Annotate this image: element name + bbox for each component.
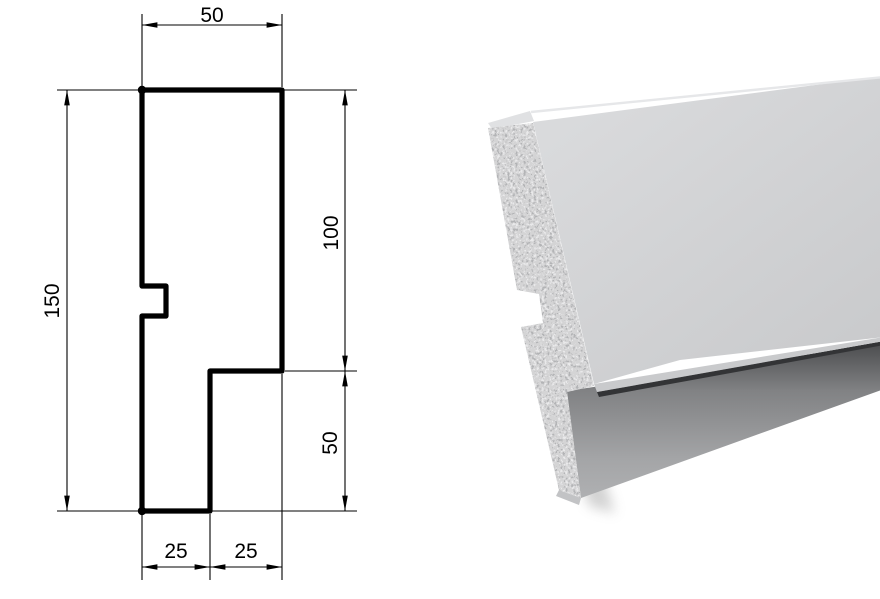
profile-outline	[142, 90, 282, 511]
profile-3d-render	[488, 76, 880, 513]
profile-corner-dot-top	[138, 86, 146, 94]
dimension-label-bottom-left: 25	[164, 540, 187, 563]
dimension-label-right-upper: 100	[320, 215, 343, 250]
technical-diagram: 50 150 100 50 25 25	[0, 0, 880, 599]
dimension-label-right-lower: 50	[319, 431, 342, 454]
beam-upper-front-face	[533, 76, 880, 384]
dimension-label-left-height: 150	[41, 283, 64, 318]
dimension-label-top-width: 50	[200, 4, 223, 27]
dimension-label-bottom-right: 25	[234, 540, 257, 563]
profile-corner-dot-bottom	[138, 507, 146, 515]
figure-canvas: 50 150 100 50 25 25	[0, 0, 880, 599]
cross-section-drawing: 50 150 100 50 25 25	[41, 4, 357, 580]
